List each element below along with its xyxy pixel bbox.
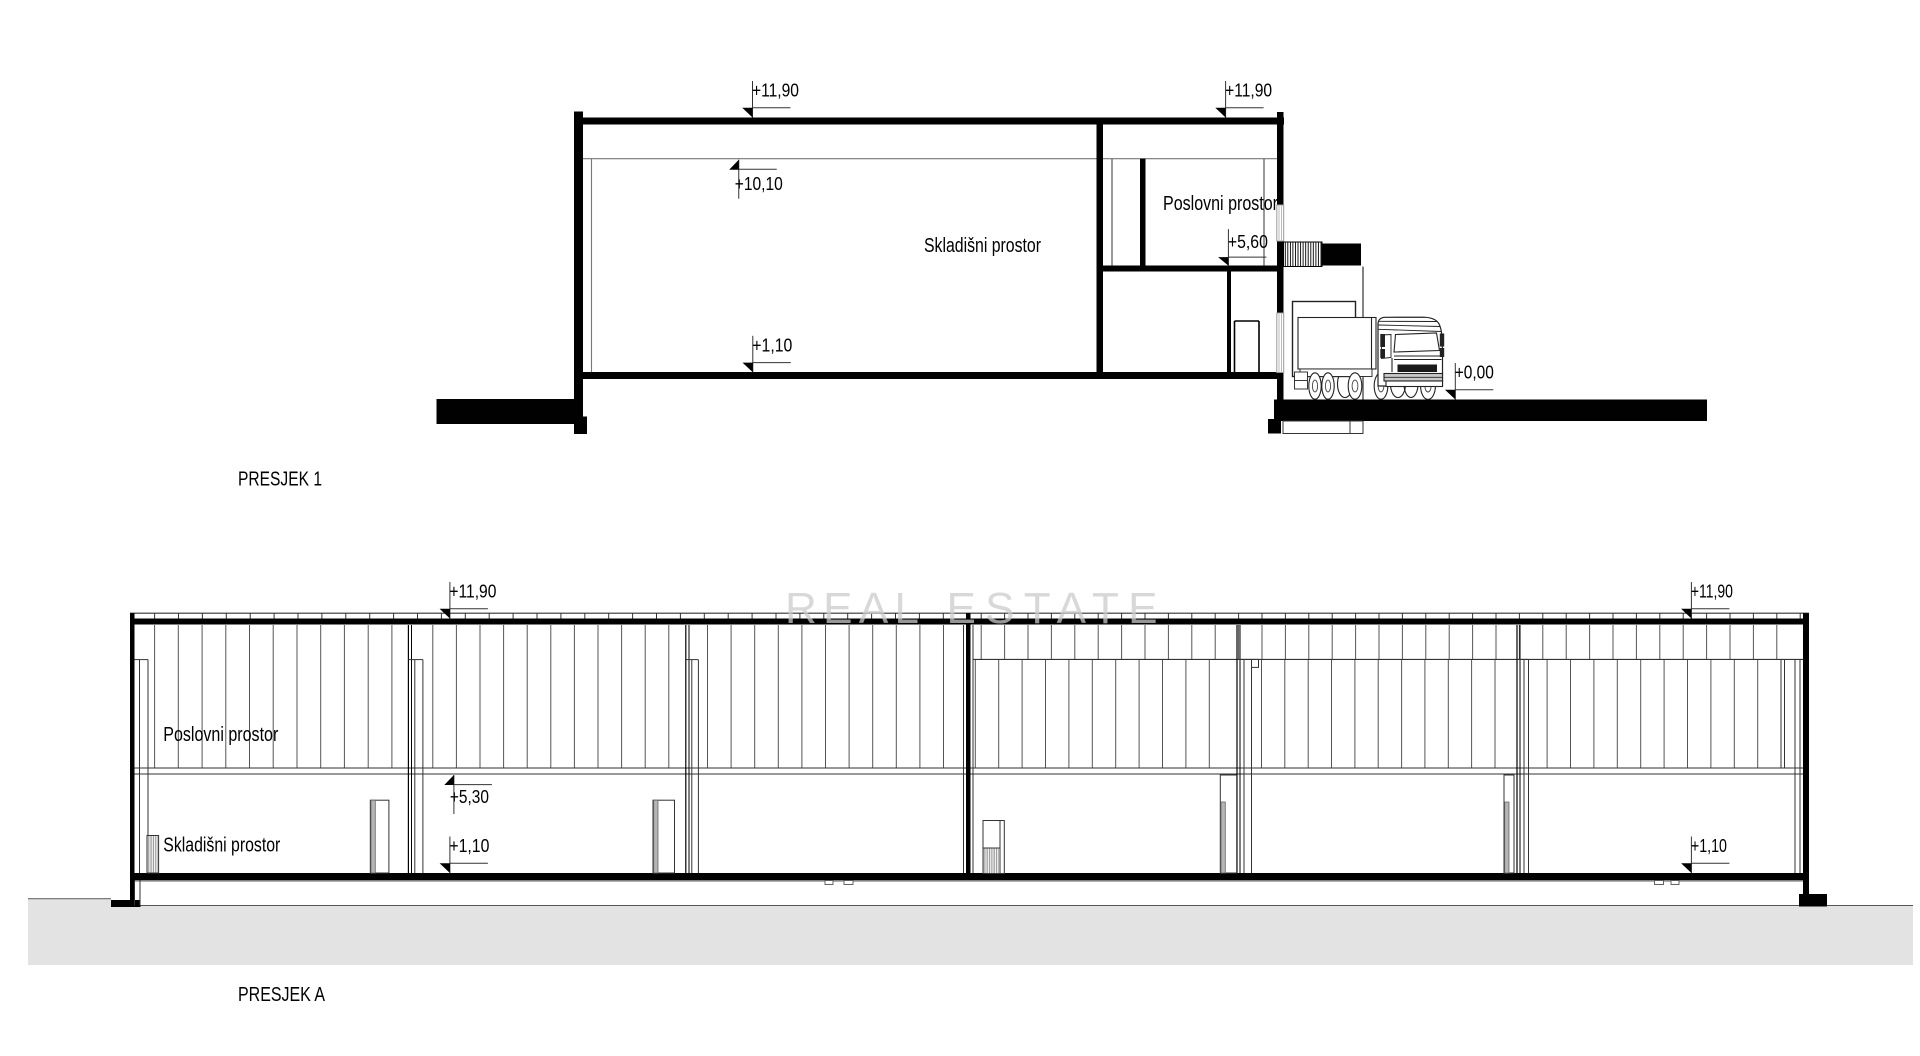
svg-text:+1,10: +1,10	[449, 836, 489, 856]
svg-text:+11,90: +11,90	[752, 81, 799, 101]
svg-text:REAL: REAL	[785, 584, 919, 633]
svg-text:PRESJEK 1: PRESJEK 1	[238, 469, 322, 491]
svg-text:Poslovni prostor: Poslovni prostor	[163, 724, 278, 746]
svg-text:Skladišni prostor: Skladišni prostor	[924, 235, 1041, 257]
svg-text:+0,00: +0,00	[1455, 363, 1494, 383]
svg-text:+11,90: +11,90	[1225, 81, 1272, 101]
svg-text:+5,60: +5,60	[1228, 232, 1268, 252]
svg-text:+1,10: +1,10	[752, 335, 792, 355]
svg-text:+11,90: +11,90	[449, 582, 496, 602]
svg-text:Skladišni prostor: Skladišni prostor	[163, 835, 280, 857]
svg-text:+5,30: +5,30	[450, 787, 489, 807]
svg-text:+1,10: +1,10	[1691, 836, 1727, 856]
svg-text:Poslovni prostor: Poslovni prostor	[1163, 193, 1278, 215]
svg-text:+11,90: +11,90	[1691, 582, 1733, 602]
svg-text:PRESJEK A: PRESJEK A	[238, 984, 326, 1006]
svg-text:+10,10: +10,10	[735, 174, 783, 194]
